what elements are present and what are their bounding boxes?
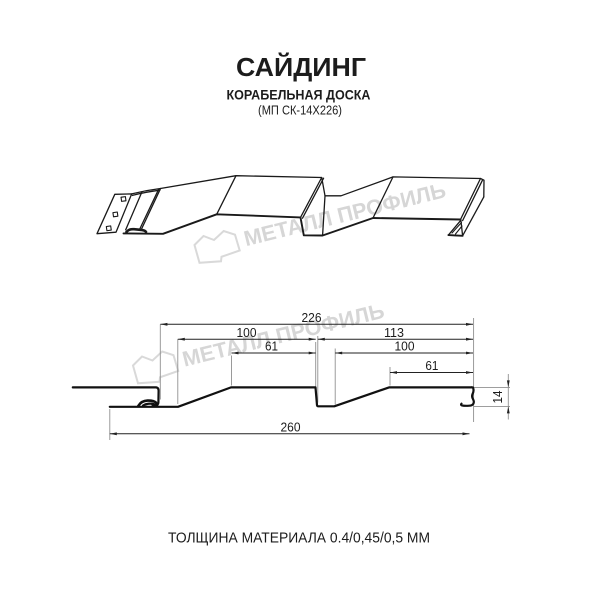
svg-text:14: 14 — [491, 390, 505, 403]
svg-text:МЕТАЛЛ ПРОФИЛЬ: МЕТАЛЛ ПРОФИЛЬ — [180, 299, 387, 372]
svg-text:САЙДИНГ: САЙДИНГ — [236, 52, 366, 82]
svg-text:100: 100 — [237, 326, 257, 340]
svg-text:226: 226 — [302, 311, 322, 325]
svg-text:ТОЛЩИНА МАТЕРИАЛА 0.4/0,45/0,5: ТОЛЩИНА МАТЕРИАЛА 0.4/0,45/0,5 ММ — [168, 530, 430, 547]
svg-text:61: 61 — [425, 359, 438, 373]
svg-text:113: 113 — [384, 326, 404, 340]
svg-text:(МП СК-14Х226): (МП СК-14Х226) — [258, 104, 342, 118]
svg-text:КОРАБЕЛЬНАЯ ДОСКА: КОРАБЕЛЬНАЯ ДОСКА — [227, 88, 371, 104]
svg-text:61: 61 — [265, 340, 278, 354]
svg-text:МЕТАЛЛ ПРОФИЛЬ: МЕТАЛЛ ПРОФИЛЬ — [241, 178, 448, 251]
svg-text:100: 100 — [395, 340, 415, 354]
svg-text:260: 260 — [281, 421, 301, 435]
